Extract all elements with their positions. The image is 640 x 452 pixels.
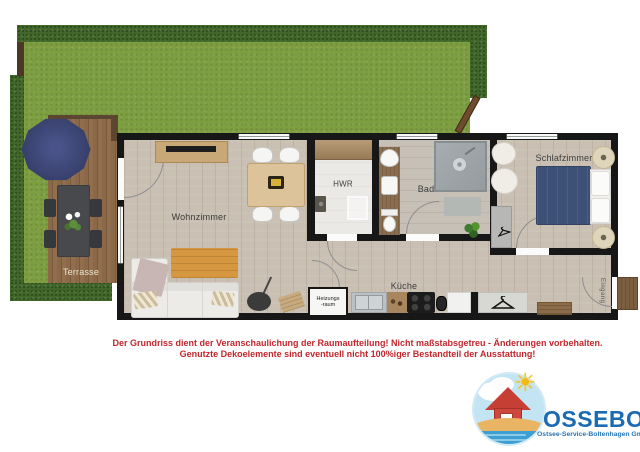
company-logo: ☀ OSSEBO Ostsee-Service-Boltenhagen GmbH (470, 370, 640, 450)
logo-subtitle: Ostsee-Service-Boltenhagen GmbH (537, 431, 640, 438)
table-decoration (268, 176, 284, 189)
kettle (436, 296, 447, 311)
bedside-pouf (592, 146, 615, 169)
window-bad (396, 134, 438, 139)
entrance-label: Eingang (599, 278, 605, 310)
dining-chair (252, 206, 273, 222)
heating-closet: Heizungs -raum (308, 287, 348, 317)
floor-plan-page: Terrasse Wohnzimmer HWR (0, 0, 640, 452)
sideboard (155, 141, 228, 163)
bed-blanket (536, 166, 591, 225)
outdoor-chair (90, 230, 102, 248)
dining-chair (279, 206, 300, 222)
disclaimer-line-2: Genutzte Dekoelemente sind eventuell nic… (75, 349, 640, 360)
tv (166, 146, 216, 152)
washing-machine (315, 196, 326, 212)
toilet (381, 209, 398, 216)
hedge-bottom (10, 281, 112, 301)
kitchen-label: Küche (391, 281, 418, 291)
living-room-rug (171, 248, 238, 278)
bad-door-opening (406, 234, 439, 241)
window-livingroom-west (118, 206, 123, 264)
sun-icon: ☀ (514, 368, 536, 398)
window-bedroom (506, 134, 558, 139)
hwr-mat (347, 196, 368, 220)
bedroom-label: Schlafzimmer (536, 153, 593, 163)
living-room-label: Wohnzimmer (172, 212, 227, 222)
hall-bench (537, 302, 572, 315)
sofa-cushion (133, 290, 158, 309)
wash-basin (381, 176, 398, 195)
hwr-shelf (315, 140, 372, 160)
hedge-top (17, 25, 487, 42)
sea-water (474, 431, 544, 444)
heating-closet-label-line2: -raum (321, 302, 335, 308)
wall-livingroom-hwr (307, 140, 315, 240)
hanger-icon (493, 220, 509, 233)
bedside-pouf (592, 226, 615, 249)
kitchen-counter (387, 292, 407, 313)
wall-hwr-bad (372, 140, 379, 241)
dining-chair (279, 147, 300, 163)
coat-wardrobe (478, 292, 528, 313)
dining-chair (252, 147, 273, 163)
wall-hwr-south-right (357, 234, 379, 241)
cooktop (407, 292, 435, 313)
hwr-label: HWR (333, 180, 353, 189)
wall-bedroom-south-left (497, 248, 516, 255)
logo-name: OSSEBO (543, 406, 640, 433)
bedroom-wardrobe (491, 206, 512, 248)
disclaimer-line-1: Der Grundriss dient der Veranschaulichun… (75, 338, 640, 349)
bedroom-door-opening (516, 248, 549, 255)
outdoor-chair (90, 199, 102, 217)
sofa-cushion (211, 291, 234, 307)
toilet-bowl (383, 216, 396, 232)
outdoor-chair (44, 230, 56, 248)
hanger-icon (491, 296, 515, 310)
wall-bad-south-left (379, 234, 406, 241)
window-livingroom (238, 134, 290, 139)
disclaimer-text: Der Grundriss dient der Veranschaulichun… (75, 338, 640, 360)
entrance-mat (617, 277, 638, 310)
wall-hwr-south-left (307, 234, 327, 241)
shower-head-icon (452, 157, 467, 172)
hwr-door-opening (327, 234, 357, 241)
wave-line (482, 434, 526, 436)
pillow (591, 171, 610, 196)
wall-bedroom-south-right (549, 248, 611, 255)
terrace-label: Terrasse (63, 267, 99, 277)
flower-pot (63, 209, 83, 235)
floor-lamp (247, 292, 271, 311)
fridge (447, 292, 471, 313)
hedge-right (470, 25, 487, 98)
hedge-left (10, 75, 24, 301)
bathroom-label: Bad (418, 184, 435, 194)
bath-mat (444, 197, 481, 216)
plant (463, 221, 482, 239)
outdoor-chair (44, 199, 56, 217)
bathtub (380, 149, 399, 167)
wall-kitchen-stub (471, 292, 478, 313)
wave-line (490, 439, 530, 441)
kitchen-sink (355, 295, 383, 310)
pillow (591, 198, 610, 223)
